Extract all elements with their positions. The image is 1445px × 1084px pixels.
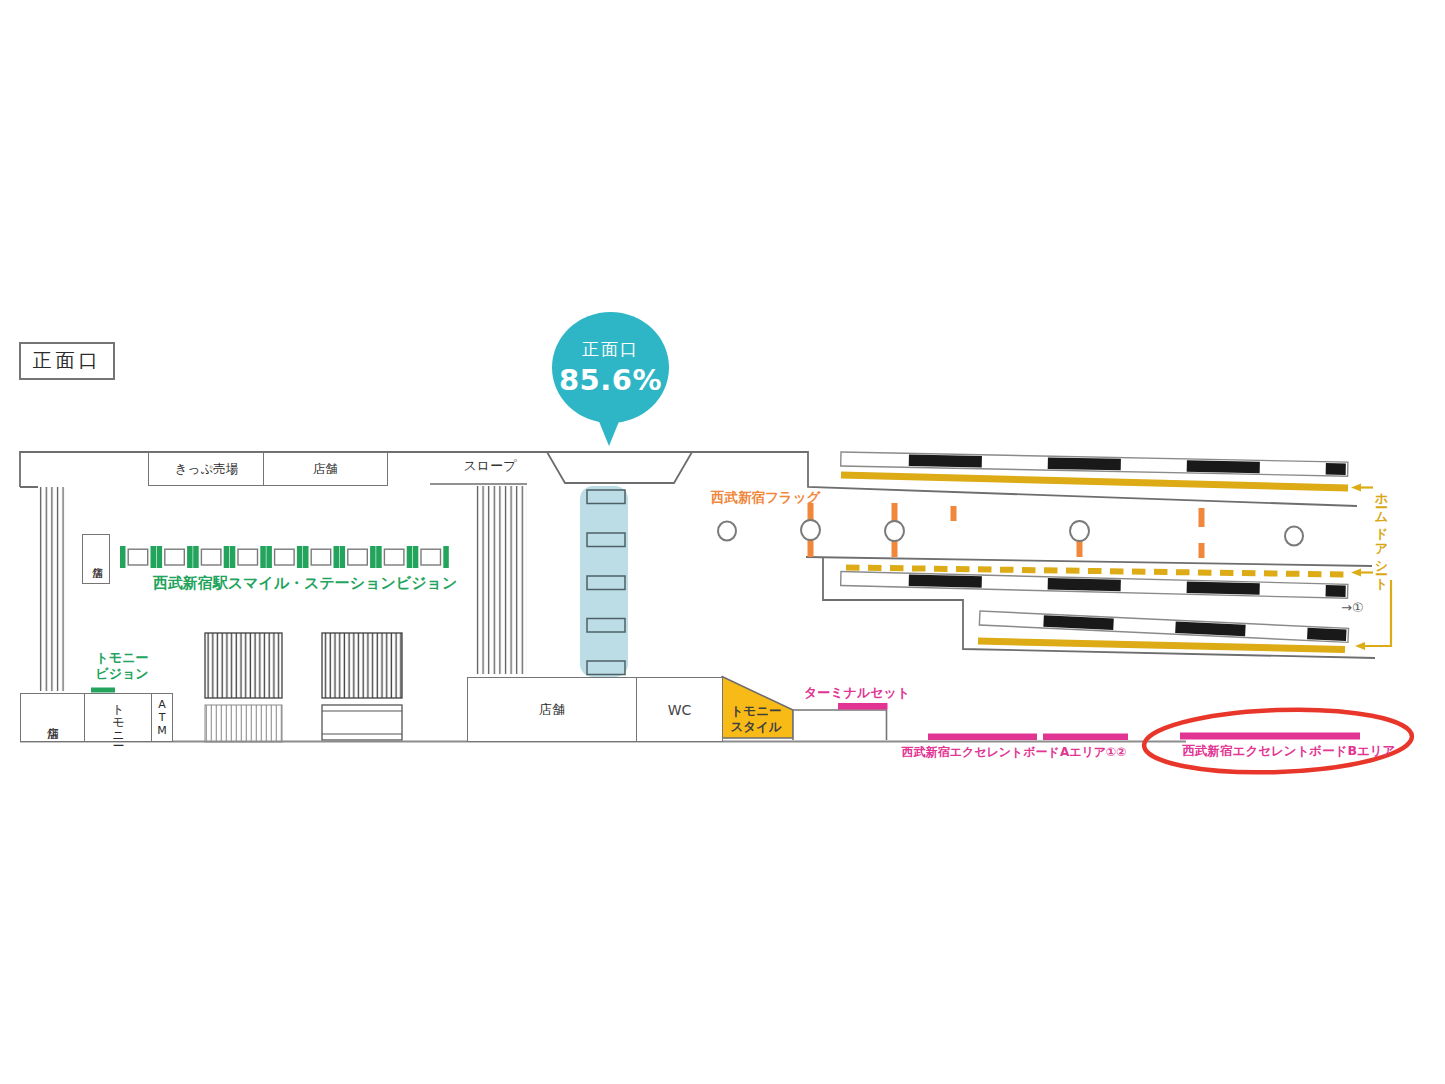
shop-small-box: 店舗	[82, 534, 110, 584]
platform-ref-mark: →①	[1341, 600, 1364, 615]
smile-station-vision-gates	[120, 546, 449, 568]
tomony-style-line1: トモニー	[731, 703, 782, 718]
slope-text: スロープ	[464, 458, 517, 473]
entrance-title: 正面口	[33, 348, 102, 374]
excellent-board-a-label: 西武新宿エクセレントボードAエリア①②	[896, 744, 1132, 761]
platform-pillars	[718, 520, 1303, 546]
wc-box: WC	[636, 677, 723, 742]
atm-box: ATM	[151, 693, 173, 742]
balloon-pointer	[598, 419, 620, 446]
seibu-flag-text: 西武新宿フラッグ	[711, 489, 820, 505]
traffic-share-balloon: 正面口 85.6%	[552, 312, 669, 423]
left-stairs-hatch	[39, 487, 65, 691]
terminal-set-bar	[838, 703, 888, 710]
home-door-sheet-line-3	[978, 641, 1345, 650]
tomony-vision-line1: トモニー	[96, 650, 149, 665]
station-floor-map: 正面口 正面口 85.6% きっぷ売場 店舗 スロープ 店舗 西武新宿駅スマイル…	[0, 0, 1445, 1084]
shop-center-label: 店舗	[539, 701, 565, 719]
home-door-sheet-text: ホームドアシート	[1374, 484, 1389, 585]
smile-station-vision-label: 西武新宿駅スマイル・ステーションビジョン	[150, 574, 460, 593]
ticket-office-box: きっぷ売場	[148, 452, 265, 486]
balloon-location: 正面口	[582, 338, 639, 361]
track-3	[979, 611, 1348, 642]
balloon-percentage: 85.6%	[559, 363, 662, 397]
shop-small-label: 店舗	[89, 558, 104, 560]
escalator-block	[322, 705, 402, 740]
map-linework	[0, 0, 1445, 1084]
stairs-block-b	[322, 633, 402, 698]
excellent-board-b-bar	[1180, 733, 1360, 740]
smile-station-vision-text: 西武新宿駅スマイル・ステーションビジョン	[153, 574, 458, 592]
home-door-sheet-line-1	[841, 475, 1348, 488]
tomony-vision-bar	[91, 688, 115, 693]
platform-edge-lower	[806, 557, 1372, 566]
excellent-board-b-text: 西武新宿エクセレントボードBエリア	[1183, 743, 1396, 758]
track-1	[841, 452, 1348, 476]
ticket-office-label: きっぷ売場	[175, 461, 238, 478]
terminal-set-text: ターミナルセット	[804, 685, 910, 700]
slope-hatch	[474, 486, 527, 674]
seibu-flag-label: 西武新宿フラッグ	[711, 489, 820, 507]
excellent-board-a-text: 西武新宿エクセレントボードAエリア①②	[902, 745, 1127, 759]
shop-top-box: 店舗	[263, 452, 388, 486]
tomony-vision-label: トモニー ビジョン	[90, 650, 154, 681]
atm-label: ATM	[156, 698, 169, 737]
tomony-vision-line2: ビジョン	[95, 666, 148, 681]
shop-top-label: 店舗	[313, 461, 338, 478]
home-door-sheet-label: ホームドアシート	[1372, 484, 1390, 588]
wc-label: WC	[668, 702, 692, 718]
seibu-flag-banners	[808, 503, 1205, 558]
excellent-board-a1-bar	[928, 734, 1037, 741]
entrance-title-box: 正面口	[19, 342, 115, 380]
excellent-board-a2-bar	[1043, 734, 1128, 741]
excellent-board-b-label: 西武新宿エクセレントボードBエリア	[1177, 743, 1401, 760]
shop-left-label: 店舗	[44, 717, 61, 719]
stairs-block-a-lower	[205, 705, 282, 742]
tomony-style-label: トモニー スタイル	[720, 703, 792, 734]
tomony-label: トモニー	[110, 695, 127, 740]
tomony-box: トモニー	[84, 693, 152, 742]
shop-left-box: 店舗	[20, 693, 85, 742]
terminal-set-box	[793, 710, 887, 740]
tomony-style-line2: スタイル	[730, 719, 781, 734]
platform-ref-text: →①	[1341, 600, 1364, 615]
stairs-block-a	[205, 633, 282, 698]
shop-center-box: 店舗	[467, 677, 637, 742]
terminal-set-label: ターミナルセット	[804, 684, 910, 702]
slope-label: スロープ	[453, 457, 527, 475]
